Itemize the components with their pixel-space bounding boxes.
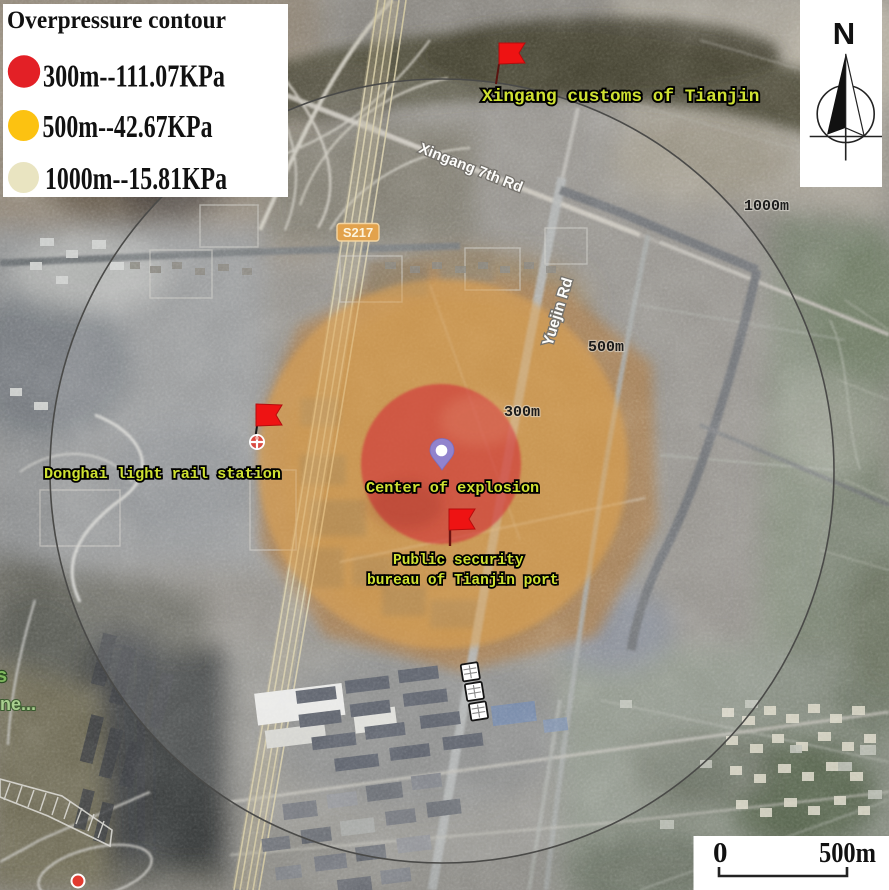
svg-text:1000m--15.81KPa: 1000m--15.81KPa [45, 160, 227, 196]
svg-text:0: 0 [713, 837, 728, 869]
svg-text:500m: 500m [819, 837, 876, 869]
svg-text:Donghai light rail station: Donghai light rail station [44, 465, 281, 483]
svg-text:Xingang customs of Tianjin: Xingang customs of Tianjin [482, 87, 759, 107]
svg-text:ne...: ne... [0, 694, 36, 714]
svg-text:s: s [0, 665, 7, 687]
svg-text:Center of explosion: Center of explosion [366, 479, 539, 497]
svg-text:1000m: 1000m [744, 198, 789, 215]
svg-text:bureau of Tianjin port: bureau of Tianjin port [367, 573, 558, 589]
svg-text:500m--42.67KPa: 500m--42.67KPa [43, 108, 213, 144]
svg-text:S217: S217 [343, 225, 373, 240]
svg-text:500m: 500m [588, 339, 624, 356]
svg-text:300m: 300m [504, 404, 540, 421]
svg-text:Public security: Public security [393, 553, 524, 569]
svg-text:N: N [833, 16, 855, 51]
svg-text:Overpressure contour: Overpressure contour [7, 5, 226, 34]
svg-text:300m--111.07KPa: 300m--111.07KPa [43, 58, 225, 94]
